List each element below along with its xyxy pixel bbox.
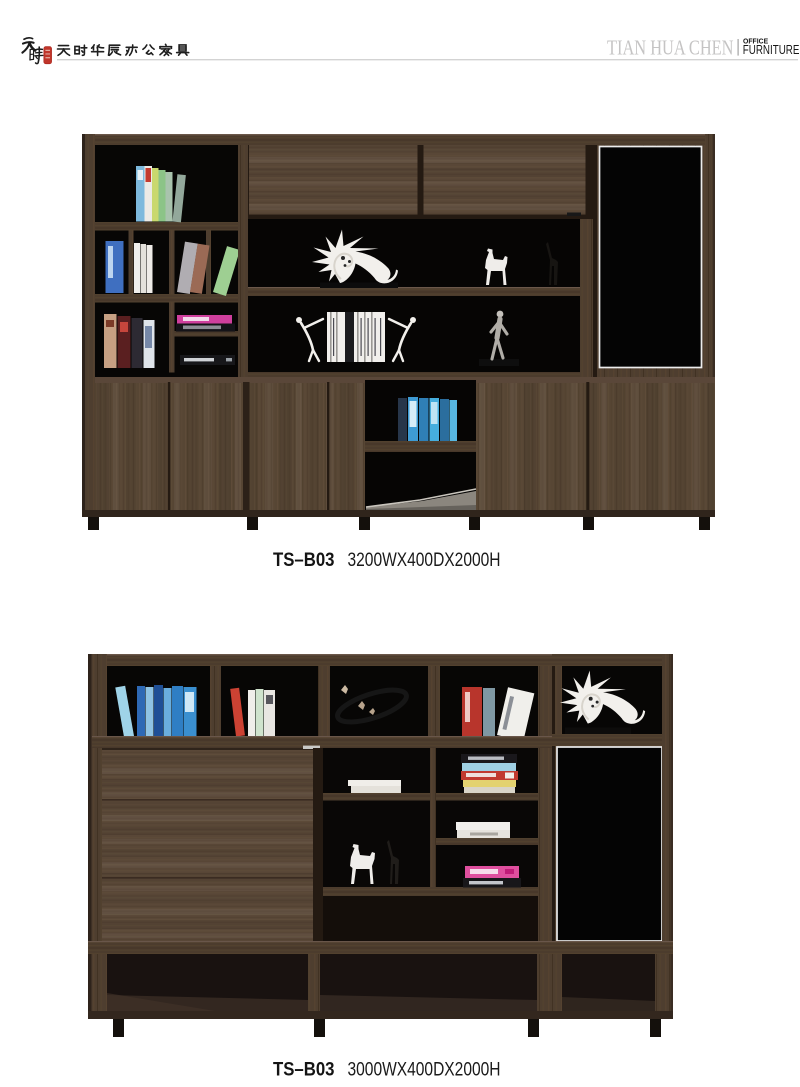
svg-text:TS–B03: TS–B03 xyxy=(273,1059,335,1081)
svg-text:FURNITURE: FURNITURE xyxy=(743,42,800,57)
svg-text:3000WX400DX2000H: 3000WX400DX2000H xyxy=(348,1059,501,1081)
svg-text:3200WX400DX2000H: 3200WX400DX2000H xyxy=(348,549,501,571)
svg-text:TIAN HUA CHEN: TIAN HUA CHEN xyxy=(607,35,734,59)
svg-text:TS–B03: TS–B03 xyxy=(273,549,335,571)
